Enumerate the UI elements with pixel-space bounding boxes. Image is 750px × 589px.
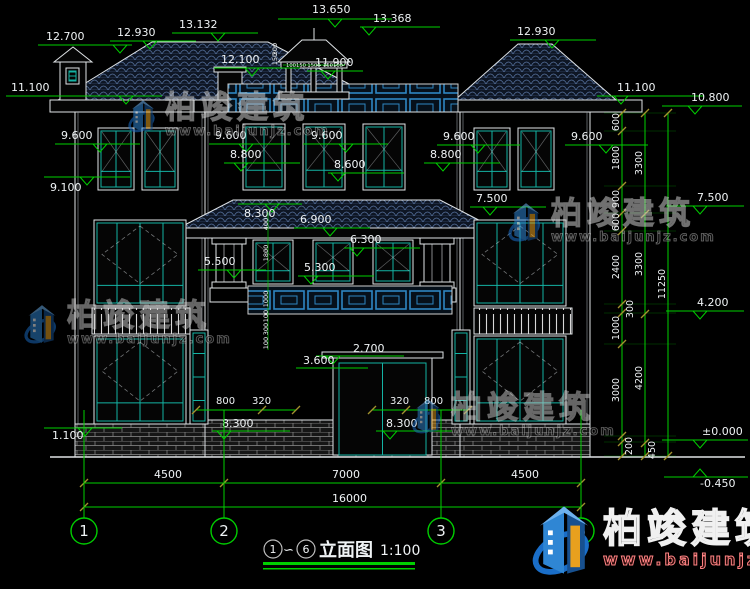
dim-text: 1000 xyxy=(262,291,270,308)
balcony-railing-left xyxy=(92,308,190,334)
canopy-fascia xyxy=(170,228,503,238)
dim-text: 800 xyxy=(216,396,235,407)
elevation-label: 10.800 xyxy=(691,91,730,104)
elevation-label: 5.300 xyxy=(304,261,336,274)
dim-text: 1500 xyxy=(307,63,320,69)
dim-text: 450 xyxy=(647,441,658,459)
dim-text: 2 xyxy=(219,522,229,540)
elevation-label: 8.800 xyxy=(230,148,262,161)
elevation-label: 8.300 xyxy=(386,417,418,430)
title-axis-start: 1 xyxy=(270,543,277,556)
elevation-label: ±0.000 xyxy=(702,425,743,438)
elevation-label: 11.100 xyxy=(11,81,50,94)
title-underline-2 xyxy=(263,568,415,570)
dim-text: 320 xyxy=(252,396,271,407)
elevation-label: 5.500 xyxy=(204,255,236,268)
elevation-label: 9.100 xyxy=(50,181,82,194)
dim-text: 100 xyxy=(286,63,296,69)
elevation-label: 8.300 xyxy=(222,417,254,430)
dim-text: 1800 xyxy=(611,146,622,170)
cad-canvas: 1 ∽ 6 立面图 1:100 12.70012.93013.13213.650… xyxy=(0,0,750,589)
title-tilde: ∽ xyxy=(283,543,294,558)
dim-text: 1000 xyxy=(611,316,622,340)
dim-text: 100 xyxy=(333,63,343,69)
elevation-label: 1.100 xyxy=(52,429,84,442)
elevation-label: 7.500 xyxy=(476,192,508,205)
dim-text: 11250 xyxy=(657,269,668,299)
elevation-label: 13.132 xyxy=(179,18,218,31)
dim-text: 4500 xyxy=(154,468,182,481)
balcony-railing-right xyxy=(474,308,572,334)
drawing-scale: 1:100 xyxy=(380,543,420,559)
title-bar: 1 ∽ 6 立面图 1:100 xyxy=(263,539,420,570)
dim-text: 4200 xyxy=(634,366,645,390)
dim-text: 200 xyxy=(624,437,635,455)
elevation-label: 12.930 xyxy=(517,25,556,38)
elevation-label: 12.700 xyxy=(46,30,85,43)
elevation-label: 6.300 xyxy=(350,233,382,246)
dim-text: 150 xyxy=(296,63,306,69)
elevation-label: 9.600 xyxy=(443,130,475,143)
dim-text: 100 xyxy=(262,337,270,349)
dim-text: 2400 xyxy=(611,255,622,279)
dim-text: 7000 xyxy=(332,468,360,481)
railing-band-lower xyxy=(248,286,452,314)
dim-text: 4500 xyxy=(511,468,539,481)
elevation-label: 3.600 xyxy=(303,354,335,367)
dim-text: 3300 xyxy=(634,151,645,175)
dim-text: 3300 xyxy=(634,252,645,276)
elevation-label: -0.450 xyxy=(700,477,735,490)
elevation-label: 4.200 xyxy=(697,296,729,309)
dim-text: 1 xyxy=(79,522,89,540)
dim-text: 1800 xyxy=(262,245,270,262)
dim-text: 16000 xyxy=(332,492,367,505)
cad-svg: 1 ∽ 6 立面图 1:100 12.70012.93013.13213.650… xyxy=(0,0,750,589)
elevation-label: 9.600 xyxy=(61,129,93,142)
elevation-label: 8.600 xyxy=(334,158,366,171)
elevation-label: 12.930 xyxy=(117,26,156,39)
elevation-label: 13.650 xyxy=(312,3,351,16)
dim-text: 3000 xyxy=(611,378,622,402)
elevation-label: 7.500 xyxy=(697,191,729,204)
dim-text: 600 xyxy=(611,113,622,131)
canopy-roof xyxy=(175,200,498,230)
dim-text: 100 xyxy=(262,310,270,322)
elevation-label: 8.800 xyxy=(430,148,462,161)
elevation-label: 12.100 xyxy=(221,53,260,66)
dim-text: 400 xyxy=(262,218,270,230)
eave-fascia-right xyxy=(450,100,642,112)
drawing-title: 立面图 xyxy=(319,539,373,561)
plinth-right xyxy=(460,424,590,457)
elevation-label: 2.700 xyxy=(353,342,385,355)
dim-text: 320 xyxy=(390,396,409,407)
dim-text: 150 xyxy=(271,53,279,65)
elevation-label: 8.300 xyxy=(244,207,276,220)
title-axis-end: 6 xyxy=(303,543,310,556)
elevation-label: 6.900 xyxy=(300,213,332,226)
elevation-label: 9.600 xyxy=(311,129,343,142)
dim-text: 6 xyxy=(576,522,586,540)
title-underline xyxy=(263,562,415,565)
elevation-label: 9.600 xyxy=(571,130,603,143)
elevation-label: 11.100 xyxy=(617,81,656,94)
dim-text: 3 xyxy=(436,522,446,540)
dim-text: 600 xyxy=(611,213,622,231)
dim-text: 300 xyxy=(262,323,270,335)
elevation-label: 9.600 xyxy=(215,129,247,142)
dim-text: 300 xyxy=(625,300,636,318)
dim-text: 150 xyxy=(323,63,333,69)
elevation-label: 13.368 xyxy=(373,12,412,25)
plinth-left xyxy=(75,424,205,457)
dim-text: 800 xyxy=(424,396,443,407)
eave-fascia-left xyxy=(50,100,194,112)
dim-text: 900 xyxy=(611,190,622,208)
